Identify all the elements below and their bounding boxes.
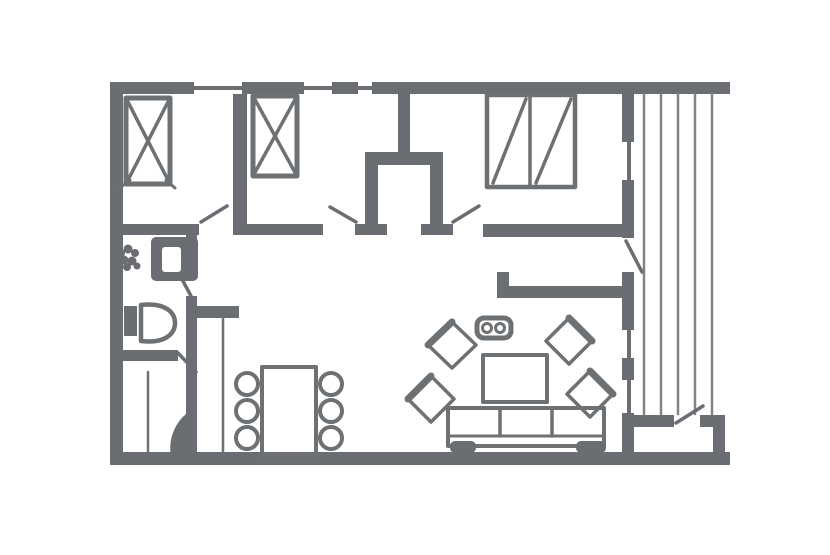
dining-chair-1 xyxy=(236,373,258,395)
wall-top-3 xyxy=(332,82,358,94)
armchair-2-back xyxy=(408,376,431,399)
window-top-1 xyxy=(194,86,242,90)
side-table-stool-2 xyxy=(496,324,505,333)
window-right-2 xyxy=(627,330,631,358)
wall-room1-bottom xyxy=(123,224,199,235)
sofa-outline xyxy=(448,408,604,446)
toilet-bowl xyxy=(141,304,175,341)
plant-leaf-8 xyxy=(115,259,122,266)
wall-entry-stub xyxy=(398,94,410,154)
sofa-foot-left xyxy=(450,441,476,453)
walls xyxy=(110,82,730,465)
plant-leaf-6 xyxy=(123,263,131,271)
wall-living-top-cap xyxy=(497,272,509,298)
door-leaf-balcony-upper xyxy=(626,241,642,272)
wall-balcony-bottom-left xyxy=(622,415,674,427)
wall-right-lower-1 xyxy=(622,358,634,380)
sofa-foot-right xyxy=(576,441,606,453)
window-top-3 xyxy=(358,86,372,90)
kitchen-appliance xyxy=(170,414,197,456)
sink-basin xyxy=(162,247,181,272)
door-leaf-bedroom xyxy=(453,206,479,222)
dining-chair-4 xyxy=(320,373,342,395)
wall-top-4 xyxy=(372,82,730,94)
wall-left xyxy=(110,82,123,465)
wall-right-upper-2 xyxy=(622,180,634,238)
armchair-3-seat xyxy=(546,318,592,364)
armchair-1-back xyxy=(428,322,452,345)
wall-top-1 xyxy=(110,82,194,94)
dining-chair-5 xyxy=(320,400,342,422)
door-leaf-room2 xyxy=(330,207,356,222)
wall-room-divider xyxy=(233,94,247,235)
dining-table xyxy=(262,367,316,455)
wall-vestibule-foot-left xyxy=(355,224,387,235)
wall-vestibule-left xyxy=(365,152,378,235)
wall-bath-right-lower xyxy=(186,296,197,362)
plant-leaf-3 xyxy=(131,249,139,257)
wall-bedroom-bottom xyxy=(483,224,622,237)
dining-chair-2 xyxy=(236,400,258,422)
armchair-4-back xyxy=(590,371,613,394)
wall-balcony-bottom-right xyxy=(700,415,725,427)
windows xyxy=(194,86,631,413)
door-leaf-room1 xyxy=(201,206,227,222)
balcony-deck xyxy=(644,94,712,414)
side-table-stool-1 xyxy=(483,324,492,333)
wall-living-top xyxy=(505,286,622,298)
dining-chair-3 xyxy=(236,427,258,449)
wall-bath-bottom xyxy=(123,350,178,361)
armchair-1-seat xyxy=(428,322,476,368)
floorplan xyxy=(0,0,830,555)
wardrobe-3-diagonal-left xyxy=(493,99,526,183)
wall-right-mid xyxy=(622,272,634,330)
window-right-3 xyxy=(627,380,631,413)
coffee-table xyxy=(483,355,547,402)
floorplan-page xyxy=(0,0,830,555)
window-top-2 xyxy=(304,86,332,90)
kitchen-counter-cap xyxy=(197,306,239,318)
wall-room2-bottom xyxy=(233,224,323,235)
window-right-1 xyxy=(627,142,631,180)
wall-vestibule-foot-right xyxy=(421,224,453,235)
dining-chair-6 xyxy=(320,427,342,449)
wardrobe-3-diagonal-right xyxy=(536,99,571,183)
toilet-tank xyxy=(124,306,137,336)
wall-balcony-corner xyxy=(713,427,725,457)
wall-bottom xyxy=(110,452,730,465)
armchair-3-back xyxy=(569,318,592,341)
armchair-4-seat xyxy=(567,371,613,417)
wall-vestibule-right xyxy=(430,152,443,235)
wall-top-2 xyxy=(242,82,304,94)
plant-leaf-7 xyxy=(134,263,141,270)
wall-right-upper-1 xyxy=(622,94,634,142)
door-leaf-balcony-lower xyxy=(676,406,703,423)
